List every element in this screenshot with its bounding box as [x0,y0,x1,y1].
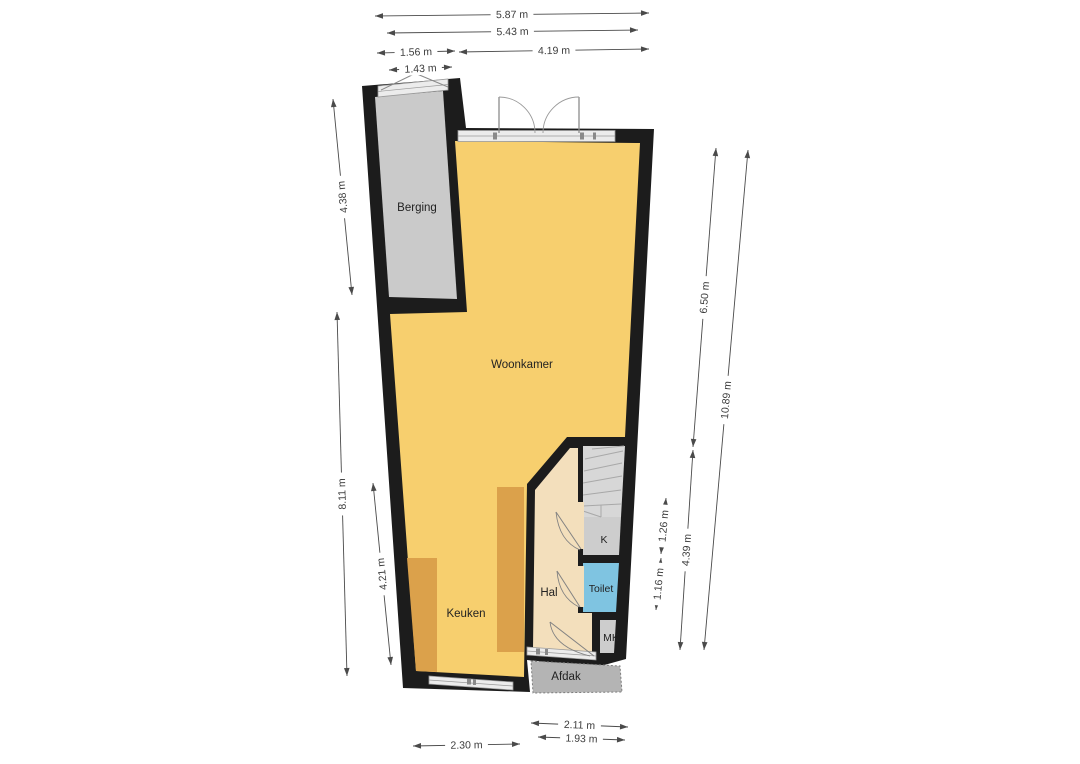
afdak-label: Afdak [551,671,581,683]
dimension-1.26-m: 1.26 m [655,498,672,554]
dimension-label: 2.11 m [564,719,596,732]
dimension-label: 1.26 m [657,509,672,542]
dimension-label: 10.89 m [719,380,734,419]
floorplan-page: Berging Woonkamer Keuken Hal Toilet K MK… [0,0,1080,764]
kast-label: K [600,534,607,546]
dimension-8.11-m: 8.11 m [334,312,349,676]
dimension-label: 1.16 m [651,567,666,600]
dimension-4.21-m: 4.21 m [371,483,393,665]
floorplan-canvas: Berging Woonkamer Keuken Hal Toilet K MK… [0,0,1080,764]
dimension-label: 5.87 m [496,9,528,21]
dimension-1.56-m: 1.56 m [377,45,455,59]
dimension-label: 4.38 m [335,180,350,213]
keuken-label: Keuken [446,608,485,620]
dimension-10.89-m: 10.89 m [702,150,750,650]
dimension-label: 5.43 m [496,26,528,38]
dimension-1.43-m: 1.43 m [389,61,452,76]
dimension-5.87-m: 5.87 m [375,8,649,21]
dimension-label: 1.93 m [565,732,598,745]
dimension-2.11-m: 2.11 m [531,718,628,733]
dimension-1.16-m: 1.16 m [650,558,667,610]
dimension-4.19-m: 4.19 m [459,44,649,58]
woonkamer-window [458,131,615,142]
berging-label: Berging [397,202,437,214]
dimension-label: 6.50 m [698,281,712,314]
dimension-label: 1.56 m [400,46,433,59]
dimension-4.38-m: 4.38 m [331,99,354,295]
keuken-counter-right [497,487,524,652]
dimension-label: 4.39 m [680,533,694,566]
dimension-1.93-m: 1.93 m [538,731,625,745]
dimension-label: 1.43 m [404,62,437,76]
dimension-5.43-m: 5.43 m [387,25,638,39]
dimension-4.39-m: 4.39 m [678,450,696,650]
dimension-2.30-m: 2.30 m [413,738,520,752]
dimension-label: 4.21 m [375,557,390,590]
woonkamer-label: Woonkamer [491,359,553,371]
dimension-label: 8.11 m [336,478,349,510]
hal-label: Hal [540,587,557,599]
dimension-label: 4.19 m [538,45,571,58]
french-doors [499,97,579,133]
berging-floor [375,91,457,299]
toilet-label: Toilet [589,583,614,595]
dimension-label: 2.30 m [450,739,483,752]
meterkast-label: MK [603,632,619,644]
dimension-6.50-m: 6.50 m [691,148,718,447]
